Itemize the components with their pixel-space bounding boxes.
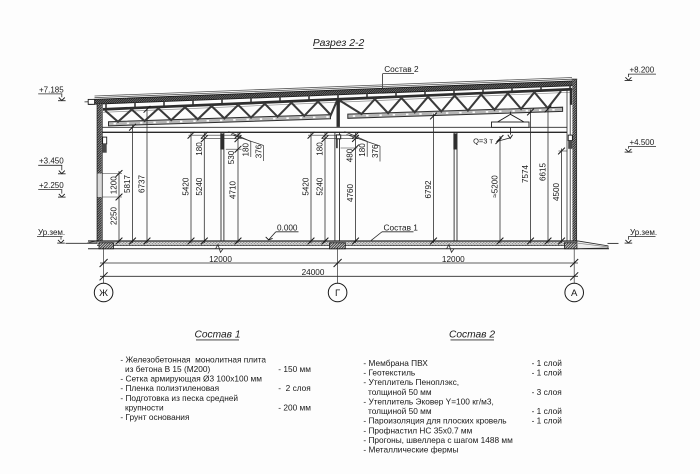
- svg-text:- 2 слоя: - 2 слоя: [278, 383, 310, 393]
- svg-text:толщиной 50 мм: толщиной 50 мм: [363, 406, 431, 416]
- svg-text:180: 180: [242, 142, 251, 156]
- svg-text:Ж: Ж: [99, 288, 108, 299]
- svg-text:5420: 5420: [301, 177, 310, 196]
- svg-text:6792: 6792: [424, 180, 433, 199]
- svg-text:480: 480: [346, 148, 355, 162]
- svg-text:Ур.зем.: Ур.зем.: [38, 228, 65, 237]
- svg-text:180: 180: [195, 142, 204, 156]
- svg-text:- 1 слой: - 1 слой: [532, 416, 563, 426]
- svg-text:Разрез 2-2: Разрез 2-2: [313, 38, 365, 49]
- svg-text:180: 180: [315, 142, 324, 156]
- svg-text:Состав 1: Состав 1: [384, 223, 419, 233]
- svg-text:12000: 12000: [442, 255, 465, 264]
- svg-text:- Подготовка из песка средней: - Подготовка из песка средней: [120, 393, 238, 403]
- svg-text:+4.500: +4.500: [630, 138, 655, 147]
- svg-text:Q=3 т: Q=3 т: [473, 136, 493, 145]
- svg-text:- 200 мм: - 200 мм: [278, 403, 311, 413]
- svg-text:- Пароизоляция для плоских кро: - Пароизоляция для плоских кровель: [363, 416, 506, 426]
- svg-text:2250: 2250: [109, 207, 118, 226]
- svg-text:Состав 2: Состав 2: [449, 330, 495, 341]
- svg-text:4500: 4500: [552, 183, 561, 202]
- svg-text:- 150 мм: - 150 мм: [278, 364, 311, 374]
- svg-text:- 3 слоя: - 3 слоя: [532, 387, 562, 397]
- svg-text:+3.450: +3.450: [39, 157, 64, 166]
- svg-text:из бетона В 15 (М200): из бетона В 15 (М200): [120, 364, 210, 374]
- svg-text:6615: 6615: [538, 163, 547, 182]
- svg-text:- Утеплитель Эковер Y=100 кг/м: - Утеплитель Эковер Y=100 кг/м3,: [363, 396, 493, 406]
- svg-text:Состав 2: Состав 2: [384, 64, 419, 74]
- svg-text:530: 530: [227, 150, 236, 164]
- svg-text:толщиной 50 мм: толщиной 50 мм: [363, 387, 431, 397]
- svg-text:- Сетка армирующая Ø3 100х100: - Сетка армирующая Ø3 100х100 мм: [120, 374, 262, 384]
- svg-text:- Железобетонная монолитная п: - Железобетонная монолитная плита: [120, 354, 266, 364]
- svg-text:180: 180: [358, 143, 367, 157]
- svg-text:5420: 5420: [182, 177, 191, 196]
- svg-text:4710: 4710: [228, 181, 237, 200]
- svg-text:0.000: 0.000: [277, 223, 298, 232]
- svg-text:- Утеплитель Пеноплэкс,: - Утеплитель Пеноплэкс,: [363, 377, 459, 387]
- svg-text:+2.250: +2.250: [39, 181, 64, 190]
- svg-text:- 1 слой: - 1 слой: [532, 367, 563, 377]
- svg-text:5240: 5240: [195, 177, 204, 196]
- svg-text:- Грунт основания: - Грунт основания: [120, 412, 189, 422]
- svg-text:7574: 7574: [521, 165, 530, 184]
- svg-text:1200: 1200: [109, 176, 118, 195]
- svg-text:24000: 24000: [302, 268, 325, 277]
- svg-text:Г: Г: [335, 288, 341, 299]
- svg-text:5240: 5240: [315, 177, 324, 196]
- svg-text:- Мембрана ПВХ: - Мембрана ПВХ: [363, 358, 428, 368]
- svg-text:+8.200: +8.200: [630, 66, 655, 75]
- svg-text:376: 376: [371, 144, 380, 158]
- svg-text:5817: 5817: [123, 175, 132, 194]
- svg-text:- Металлические фермы: - Металлические фермы: [363, 445, 458, 455]
- svg-text:- Геотекстиль: - Геотекстиль: [363, 367, 415, 377]
- svg-text:- Прогоны, швеллера с шагом 14: - Прогоны, швеллера с шагом 1488 мм: [363, 435, 513, 445]
- svg-text:+7.185: +7.185: [39, 85, 64, 94]
- svg-text:- 1 слой: - 1 слой: [532, 358, 563, 368]
- svg-text:4760: 4760: [346, 184, 355, 203]
- svg-text:- Пленка полиэтиленовая: - Пленка полиэтиленовая: [120, 383, 219, 393]
- svg-text:376: 376: [254, 144, 263, 158]
- svg-text:6737: 6737: [137, 175, 146, 194]
- svg-text:≈5200: ≈5200: [490, 175, 499, 198]
- svg-text:А: А: [571, 288, 578, 299]
- svg-text:12000: 12000: [209, 255, 232, 264]
- svg-text:Состав 1: Состав 1: [195, 330, 241, 341]
- svg-text:Ур.зем.: Ур.зем.: [630, 228, 657, 237]
- svg-text:- 1 слой: - 1 слой: [532, 406, 563, 416]
- svg-text:крупности: крупности: [120, 403, 164, 413]
- svg-text:- Профнастил НС 35х0.7 мм: - Профнастил НС 35х0.7 мм: [363, 425, 472, 435]
